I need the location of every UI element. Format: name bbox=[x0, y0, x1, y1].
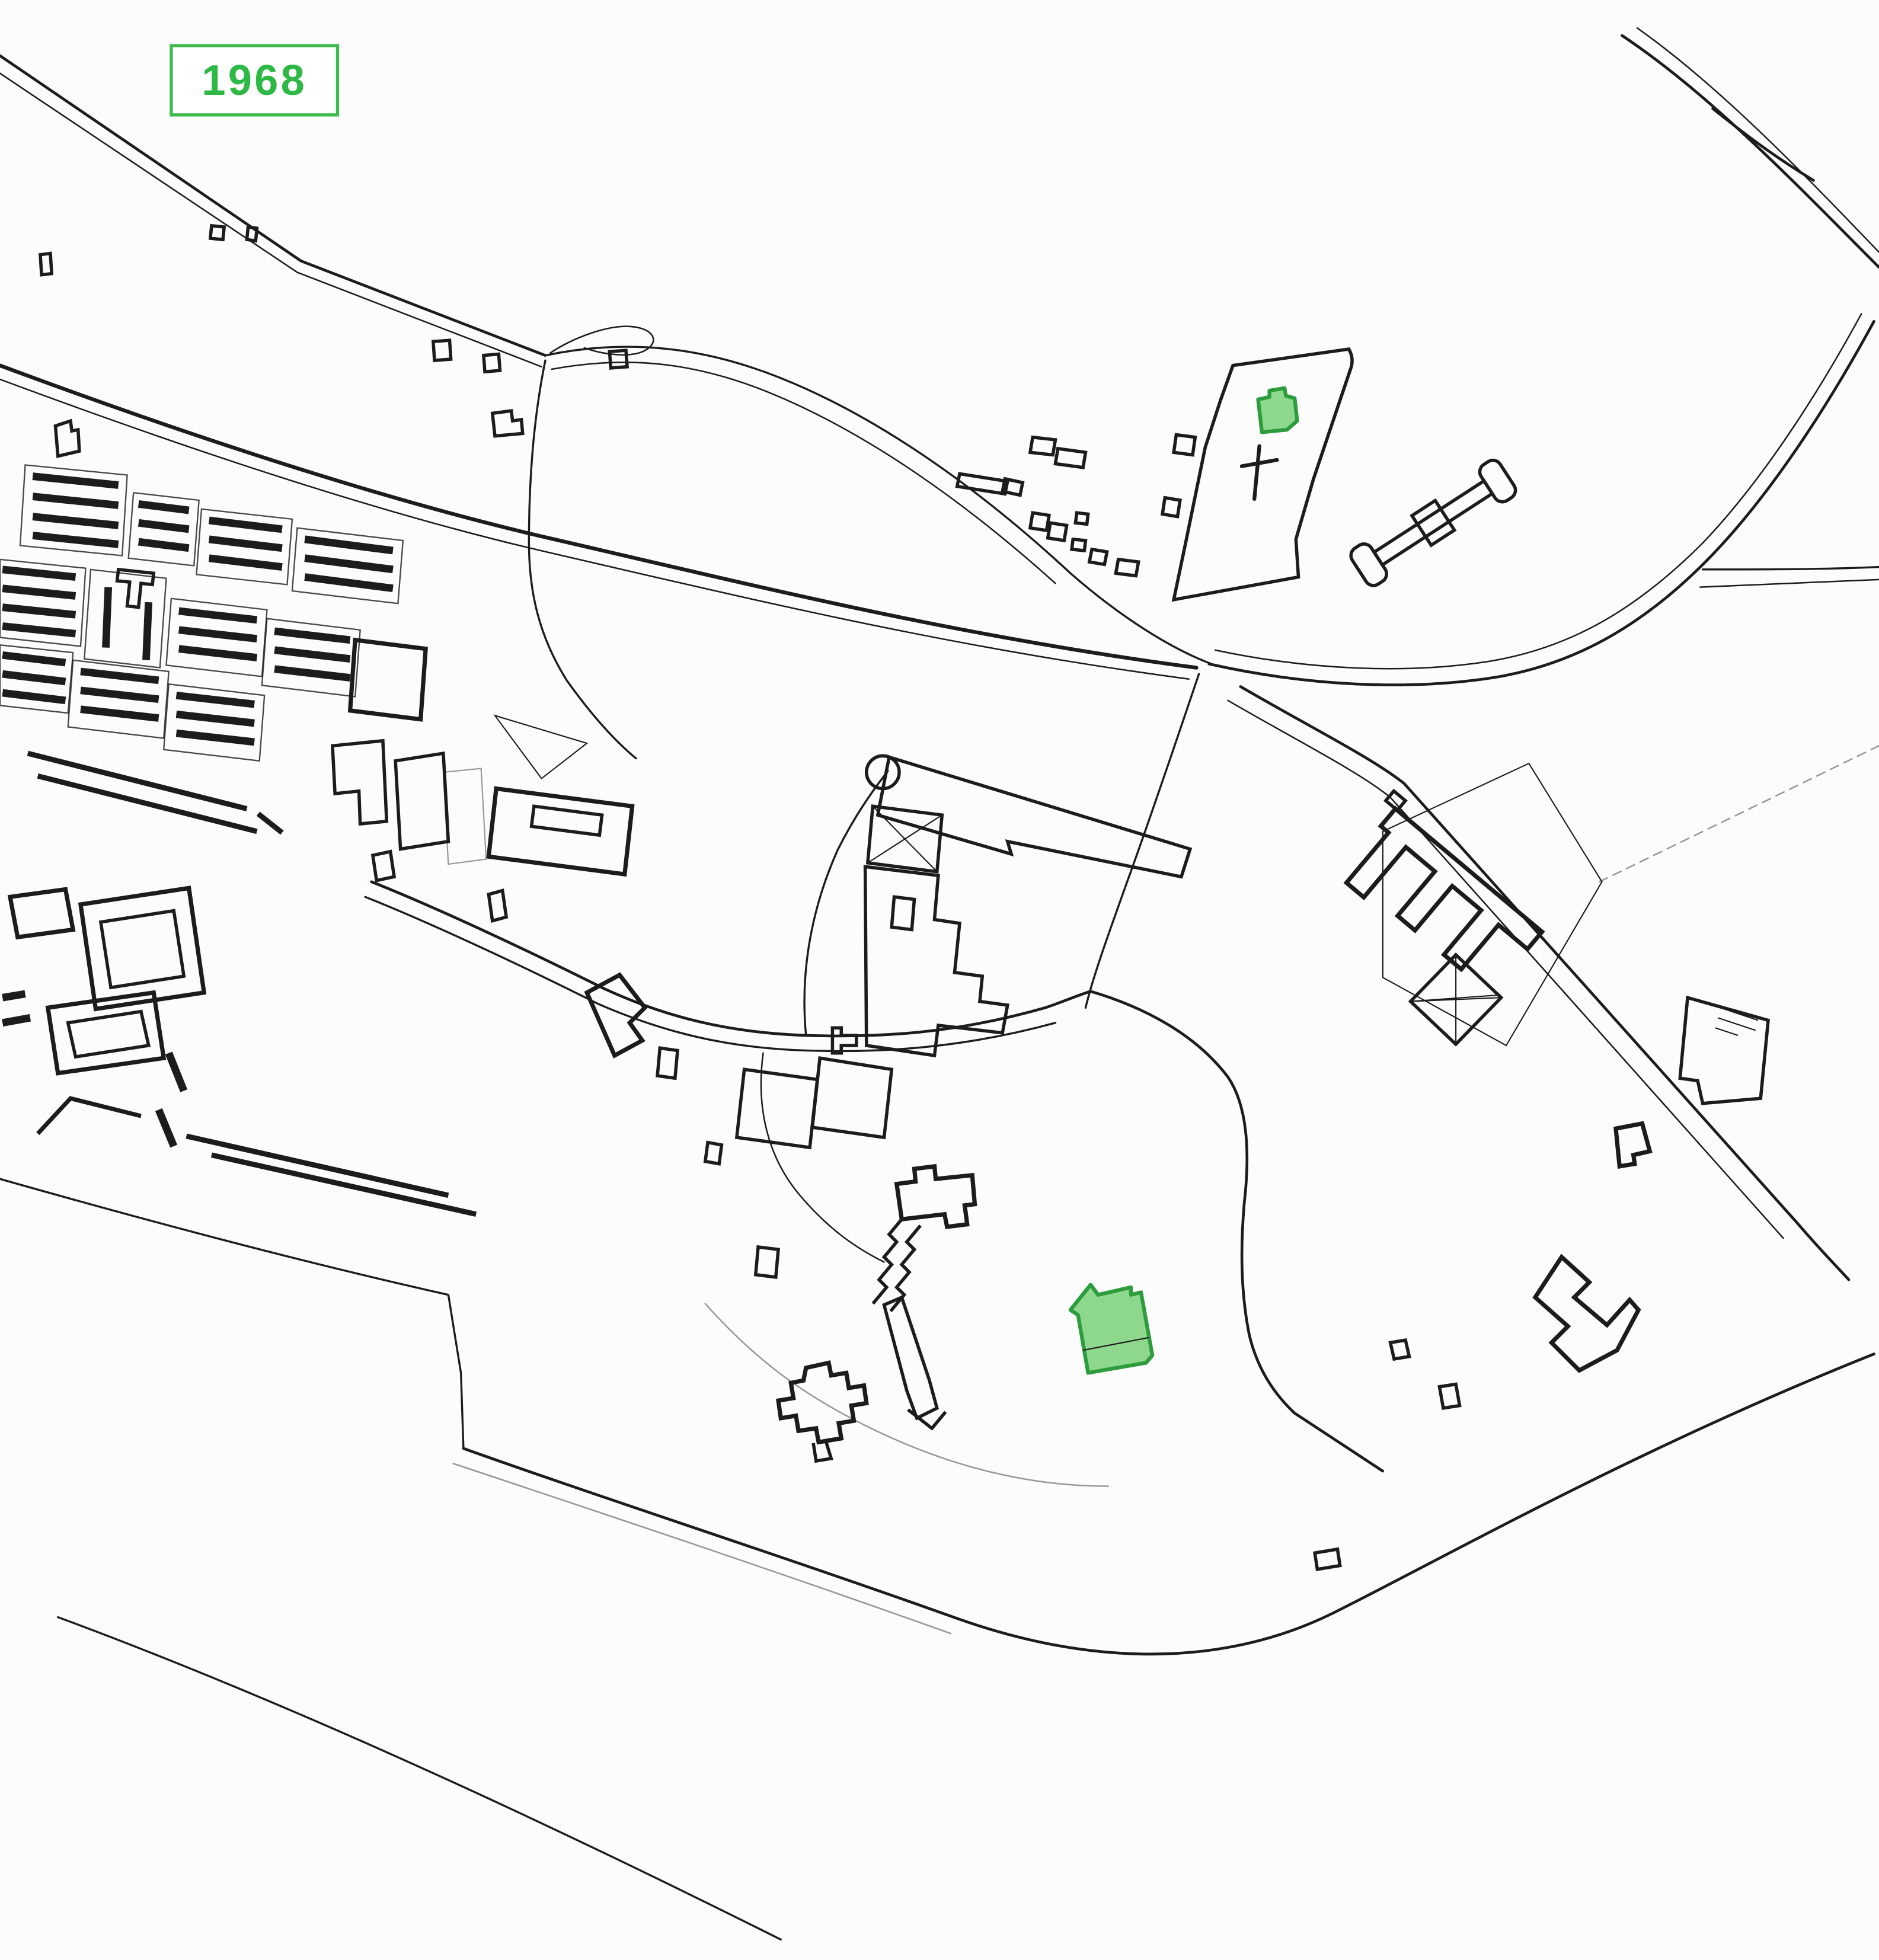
road-northeast bbox=[1209, 321, 1874, 685]
long-bar bbox=[186, 1136, 448, 1195]
long-bar bbox=[212, 1155, 476, 1214]
stroke-top-right bbox=[1713, 108, 1814, 180]
road-park-east bbox=[1091, 992, 1383, 1471]
parcel-dashed-line bbox=[1599, 746, 1879, 881]
tiny-house bbox=[1391, 1340, 1410, 1359]
mid-left-buildings bbox=[333, 715, 632, 920]
line-bottom-left bbox=[58, 1617, 781, 1940]
road-fork-loop bbox=[550, 327, 653, 355]
small-building bbox=[756, 1247, 778, 1277]
tiny-house bbox=[1315, 1549, 1340, 1569]
small-t-building bbox=[832, 1028, 856, 1053]
cemetery-parcel bbox=[1174, 349, 1352, 600]
perimeter-block-inner bbox=[68, 1012, 149, 1057]
hand-drawn-map-1968: 1968 bbox=[0, 0, 1879, 1960]
year-label: 1968 bbox=[171, 46, 337, 115]
p-building bbox=[587, 975, 645, 1056]
street-north-branch bbox=[804, 771, 888, 1035]
right-buildings bbox=[1315, 997, 1768, 1569]
long-wing bbox=[884, 1297, 937, 1418]
corner-block bbox=[38, 1098, 141, 1133]
park-area bbox=[756, 1166, 1152, 1461]
small-building bbox=[891, 897, 914, 929]
cross-building bbox=[897, 1166, 975, 1227]
bold-building bbox=[350, 640, 426, 720]
roads-layer bbox=[0, 28, 1879, 1939]
park-path-west bbox=[761, 1053, 884, 1262]
parcel-outline bbox=[1383, 763, 1602, 1045]
tiny-house bbox=[1439, 1385, 1459, 1408]
park-main-building-highlight bbox=[1070, 1285, 1152, 1373]
e-building-annex bbox=[1386, 791, 1405, 811]
small-bar bbox=[159, 1110, 174, 1146]
central-buildings bbox=[657, 756, 1190, 1163]
x-rect-building bbox=[1411, 955, 1501, 1044]
small-building bbox=[657, 1048, 678, 1078]
road-southeast bbox=[1241, 686, 1849, 1280]
slanted-building bbox=[395, 753, 448, 849]
stepped-building bbox=[865, 867, 1008, 1056]
line-ne-corner bbox=[1622, 36, 1879, 267]
road-bottom-edge bbox=[453, 1463, 951, 1633]
perimeter-block bbox=[10, 890, 73, 938]
cemetery bbox=[1174, 349, 1352, 600]
road-junction-south bbox=[1085, 674, 1199, 1008]
hook-building bbox=[1535, 1257, 1638, 1370]
rect-pair-left bbox=[737, 1069, 817, 1147]
small-building bbox=[488, 891, 506, 921]
street-main bbox=[372, 882, 1091, 1036]
map-canvas: 1968 bbox=[0, 0, 1879, 1960]
road-east bbox=[545, 347, 1212, 664]
road-southeast-edge bbox=[1228, 701, 1784, 1238]
flag-building bbox=[1616, 1124, 1650, 1166]
small-building bbox=[373, 852, 394, 881]
small-bar bbox=[169, 1053, 184, 1091]
road-lower-left bbox=[0, 1179, 464, 1449]
slanted-large-building bbox=[1680, 997, 1768, 1103]
u-building-courtyard bbox=[532, 806, 602, 835]
east-complex bbox=[1329, 763, 1602, 1045]
rect-pair-right bbox=[812, 1058, 891, 1137]
road-east-exit-edge bbox=[1700, 580, 1879, 587]
cemetery-chapel-highlight bbox=[1258, 388, 1298, 432]
line-ne-corner-edge bbox=[1637, 28, 1879, 252]
perimeter-block-inner bbox=[101, 911, 184, 988]
short-strip bbox=[258, 814, 282, 833]
small-building bbox=[705, 1143, 722, 1164]
perimeter-block bbox=[81, 888, 204, 1009]
residential-grid bbox=[0, 465, 645, 1214]
castle-porch bbox=[814, 1442, 832, 1461]
faint-parcel bbox=[443, 769, 486, 864]
road-east-edge bbox=[552, 362, 1056, 583]
road-bottom bbox=[464, 1354, 1874, 1654]
notched-building bbox=[333, 741, 386, 824]
road-east-exit bbox=[1703, 567, 1879, 570]
road-island bbox=[495, 715, 587, 778]
cross-icon bbox=[1242, 446, 1277, 499]
road-south-from-fork bbox=[529, 360, 636, 758]
year-label-text: 1968 bbox=[202, 57, 307, 104]
dumbbell-building bbox=[1347, 457, 1519, 589]
railway-line bbox=[0, 366, 1196, 668]
